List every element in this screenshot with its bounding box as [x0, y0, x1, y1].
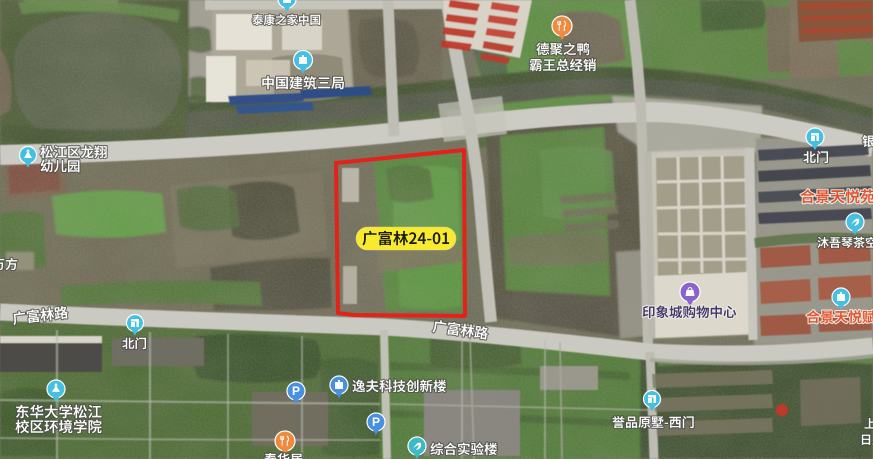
svg-text:P: P	[372, 415, 380, 429]
svg-text:P: P	[292, 384, 300, 398]
